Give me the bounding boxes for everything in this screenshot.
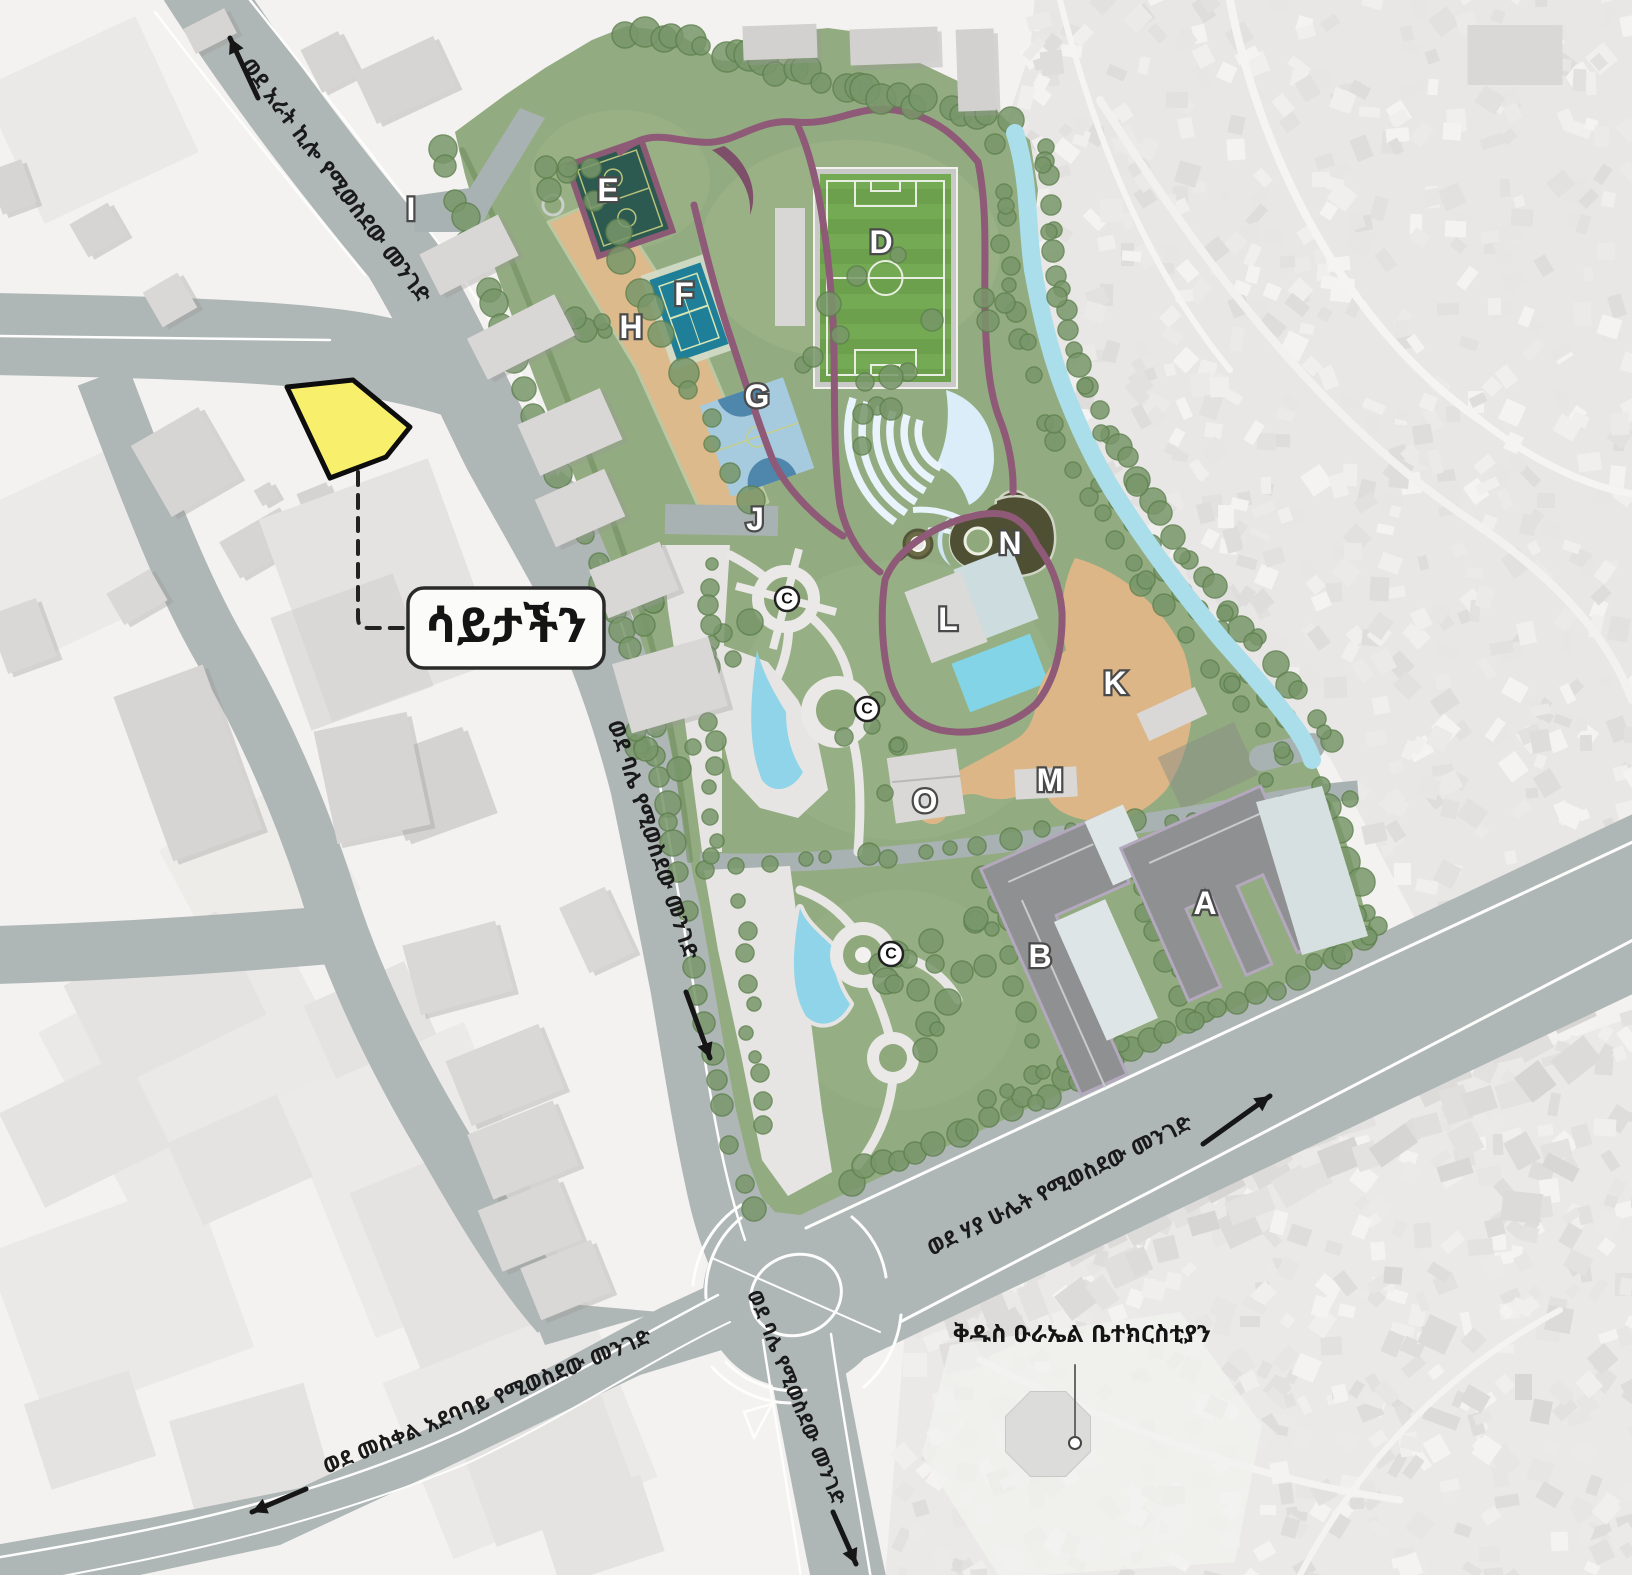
svg-text:B: B (1028, 938, 1051, 974)
svg-text:C: C (885, 946, 897, 963)
svg-text:E: E (597, 172, 618, 208)
svg-text:M: M (1037, 762, 1064, 798)
svg-text:D: D (869, 224, 892, 260)
svg-text:I: I (407, 191, 416, 227)
svg-text:C: C (781, 591, 793, 608)
svg-text:C: C (861, 701, 873, 718)
svg-text:G: G (745, 378, 770, 414)
svg-text:A: A (1193, 885, 1216, 921)
svg-text:L: L (938, 601, 958, 637)
svg-text:H: H (619, 309, 642, 345)
svg-text:O: O (913, 783, 938, 819)
svg-text:N: N (998, 525, 1021, 561)
svg-text:J: J (746, 501, 764, 537)
svg-text:F: F (674, 276, 694, 312)
svg-text:K: K (1103, 665, 1126, 701)
